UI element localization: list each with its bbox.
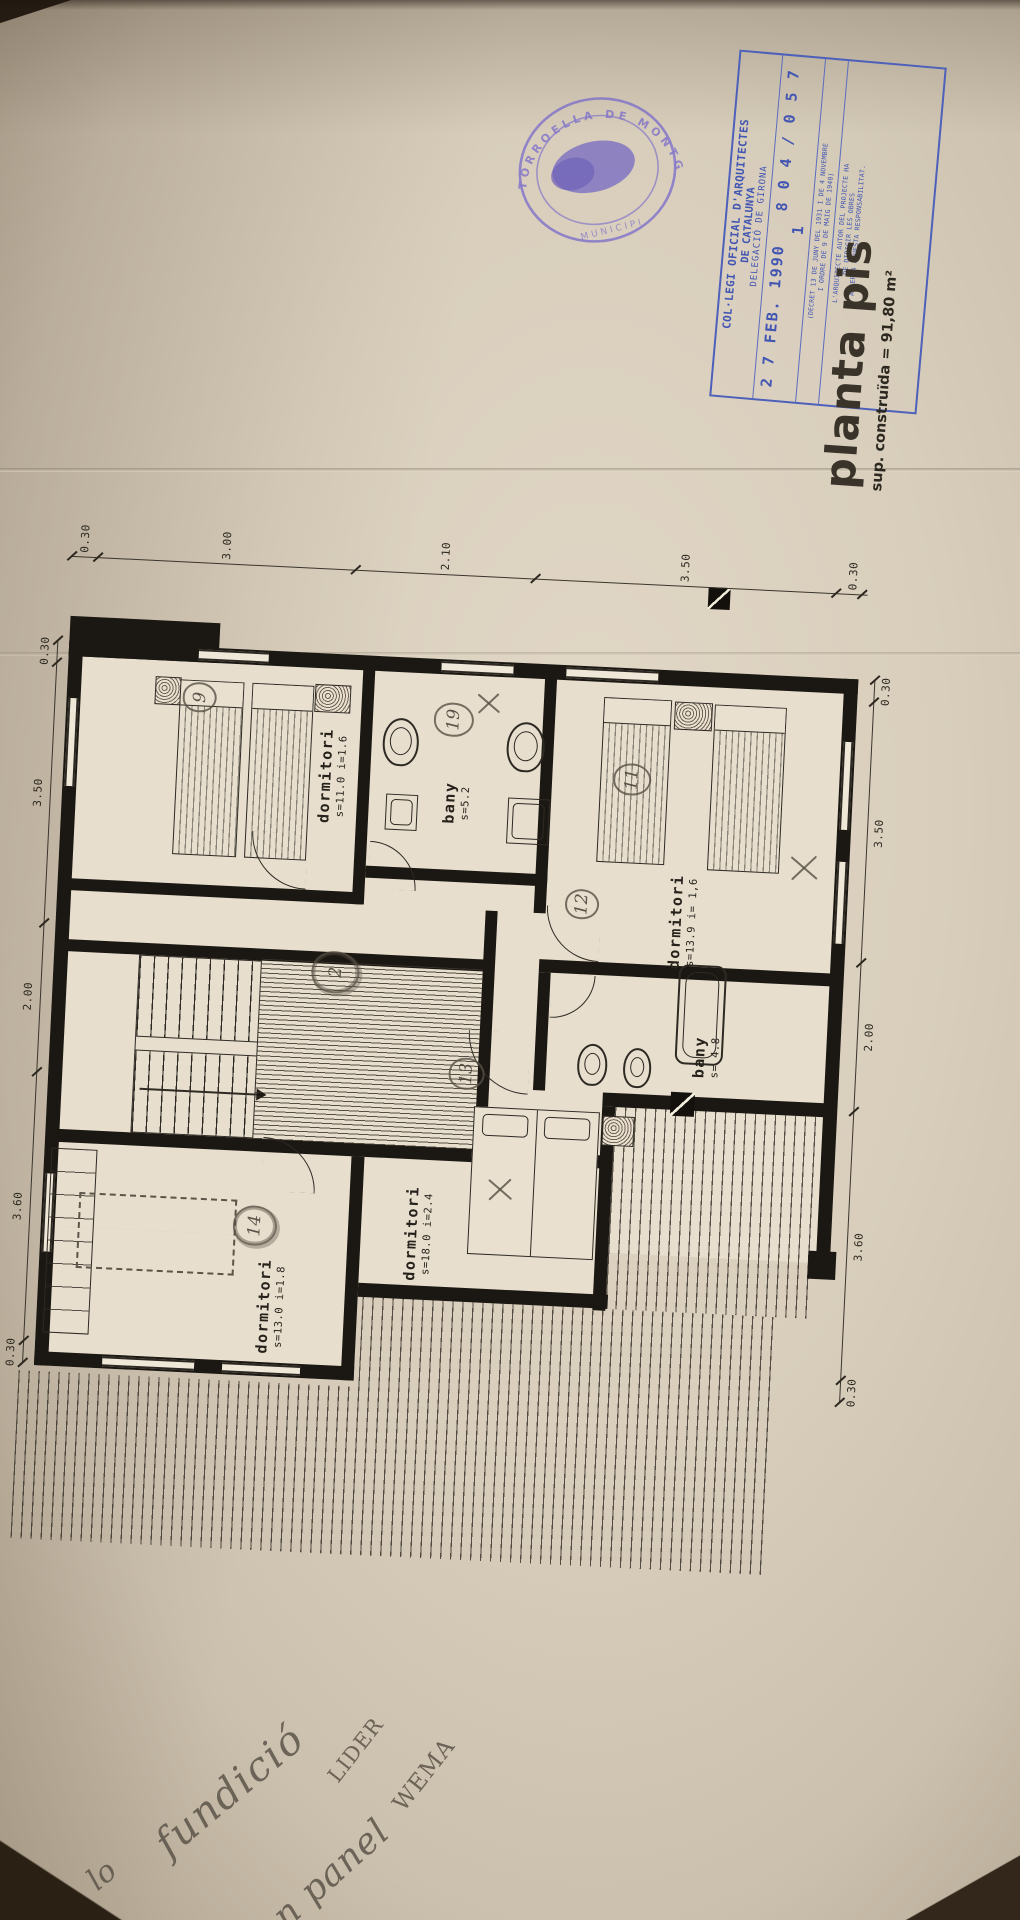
photo-corner-shadow [900, 1852, 1020, 1920]
window-sill-symbol [670, 1092, 695, 1117]
circled-number-text: 11 [622, 768, 643, 791]
circled-number-text: 14 [244, 1214, 265, 1237]
photo-corner-shadow [0, 0, 80, 26]
nightstand [314, 684, 351, 714]
photo-edge-shadow [0, 0, 1020, 10]
pencil-x-mark [786, 849, 822, 885]
shower-tray [506, 797, 550, 845]
title-inner: planta pis sup. construïda = 91,80 m² [815, 230, 939, 495]
room-label-bany-52: bany s=5.2 [439, 781, 472, 825]
pencil-bed-outline [76, 1192, 238, 1276]
bed [707, 704, 787, 873]
dimension-value: 0.30 [846, 562, 860, 591]
nightstand [601, 1115, 634, 1147]
dimension-value: 3.50 [872, 819, 886, 848]
drawing-title-block: planta pis sup. construïda = 91,80 m² [822, 232, 932, 492]
nightstand [674, 702, 713, 732]
svg-text:TORROELLA DE MONTGRI: TORROELLA DE MONTGRI [486, 62, 687, 216]
municipal-round-stamp: TORROELLA DE MONTGRI MUNICIPI [486, 62, 709, 281]
pencil-x-mark [484, 1173, 515, 1204]
toilet-bowl [584, 1053, 601, 1076]
photo-corner-shadow [0, 1822, 150, 1920]
circled-number-text: 2 [325, 966, 346, 978]
room-label-dormitori-130: dormitori s=13.0 i=1.8 [252, 1258, 288, 1354]
handwritten-note: WEMA [388, 1734, 461, 1817]
bidet-bowl [389, 727, 412, 756]
dimension-value: 0.30 [3, 1337, 17, 1366]
washbasin [385, 794, 419, 832]
handwritten-note: con panel [232, 1811, 398, 1920]
dimension-value: 3.00 [220, 531, 234, 560]
room-label-dormitori-139: dormitori s=13.9 i= 1,6 [665, 874, 701, 970]
dimension-value: 0.30 [38, 636, 52, 665]
bed-divider [530, 1110, 539, 1256]
basin [390, 799, 413, 826]
dimension-value: 0.30 [844, 1378, 858, 1407]
circled-number-text: 12 [572, 893, 593, 916]
circled-number-text: 9 [189, 691, 210, 703]
bed-head [715, 706, 786, 734]
bidet-bowl [630, 1057, 645, 1078]
corner-pillar [807, 1251, 836, 1280]
room-label-dormitori-11: dormitori s=11.0 i=1.6 [314, 728, 350, 824]
handwritten-note: LIDER [323, 1713, 388, 1787]
bed-head [604, 698, 671, 726]
dimension-value: 2.00 [21, 982, 35, 1011]
bed-head [252, 684, 313, 712]
window-sill-symbol [708, 587, 731, 610]
bed [244, 683, 314, 861]
dimension-value: 0.30 [879, 677, 893, 706]
pencil-x-mark [474, 688, 503, 717]
stamp-arc-text: TORROELLA DE MONTGRI [486, 62, 687, 216]
circled-number-text: 13 [456, 1062, 477, 1085]
room-label-bany-48: bany s= 4.8 [689, 1036, 722, 1080]
dimension-value: 2.10 [439, 542, 453, 571]
pillow [544, 1117, 591, 1141]
floor-plan-drawing: dormitori s=11.0 i=1.6 bany s=5.2 dormit… [5, 525, 904, 1595]
stair-flight [136, 956, 261, 1042]
hall-floor-hatch [253, 959, 483, 1152]
handwritten-note: lo [80, 1853, 124, 1898]
staircase [130, 955, 262, 1139]
dimension-line-top [71, 556, 867, 596]
pillow [482, 1114, 529, 1138]
photographed-blueprint: dormitori s=11.0 i=1.6 bany s=5.2 dormit… [0, 0, 1020, 1920]
dimension-value: 0.30 [78, 524, 92, 553]
room-detail: s=5.2 [458, 782, 472, 825]
dimension-value: 3.50 [31, 778, 45, 807]
shower-base [511, 803, 545, 841]
dimension-value: 3.60 [11, 1191, 25, 1220]
terrace [10, 1370, 772, 1575]
room-detail: s= 4.8 [708, 1037, 722, 1080]
circled-number-text: 19 [443, 708, 464, 731]
room-name: bany [689, 1036, 709, 1079]
toilet-bowl [513, 731, 538, 762]
handwritten-note: fundició [146, 1716, 313, 1867]
dimension-value: 2.00 [862, 1023, 876, 1052]
dimension-value: 3.50 [678, 553, 692, 582]
nightstand [154, 676, 181, 705]
room-label-dormitori-180: dormitori s=18.0 i=2.4 [400, 1185, 436, 1281]
terrace-deck [605, 1107, 824, 1319]
room-name: bany [439, 781, 459, 824]
dimension-value: 3.60 [851, 1233, 865, 1262]
